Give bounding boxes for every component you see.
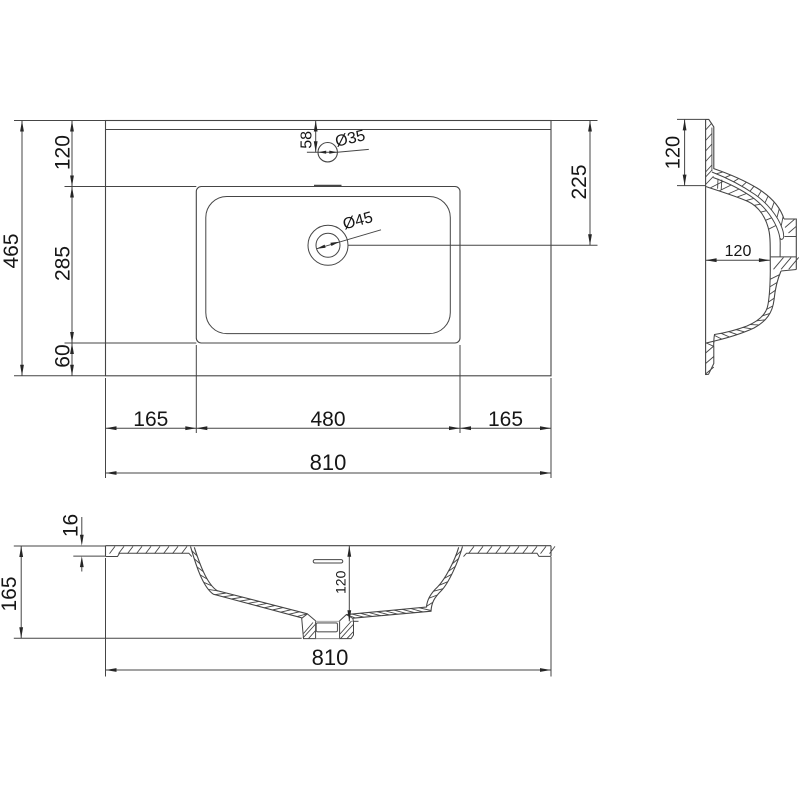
svg-text:225: 225 [568, 164, 591, 199]
svg-text:465: 465 [0, 233, 23, 268]
svg-text:58: 58 [298, 131, 315, 149]
svg-text:810: 810 [312, 645, 349, 670]
svg-text:120: 120 [725, 243, 752, 260]
svg-text:165: 165 [133, 408, 168, 431]
svg-text:120: 120 [52, 135, 75, 170]
svg-text:285: 285 [52, 246, 75, 281]
svg-text:120: 120 [663, 136, 685, 169]
svg-text:16: 16 [59, 514, 82, 537]
svg-text:60: 60 [52, 344, 75, 367]
svg-text:165: 165 [488, 408, 523, 431]
svg-text:480: 480 [310, 408, 345, 431]
svg-text:120: 120 [333, 570, 349, 594]
svg-text:810: 810 [310, 450, 347, 475]
svg-text:165: 165 [0, 576, 21, 611]
